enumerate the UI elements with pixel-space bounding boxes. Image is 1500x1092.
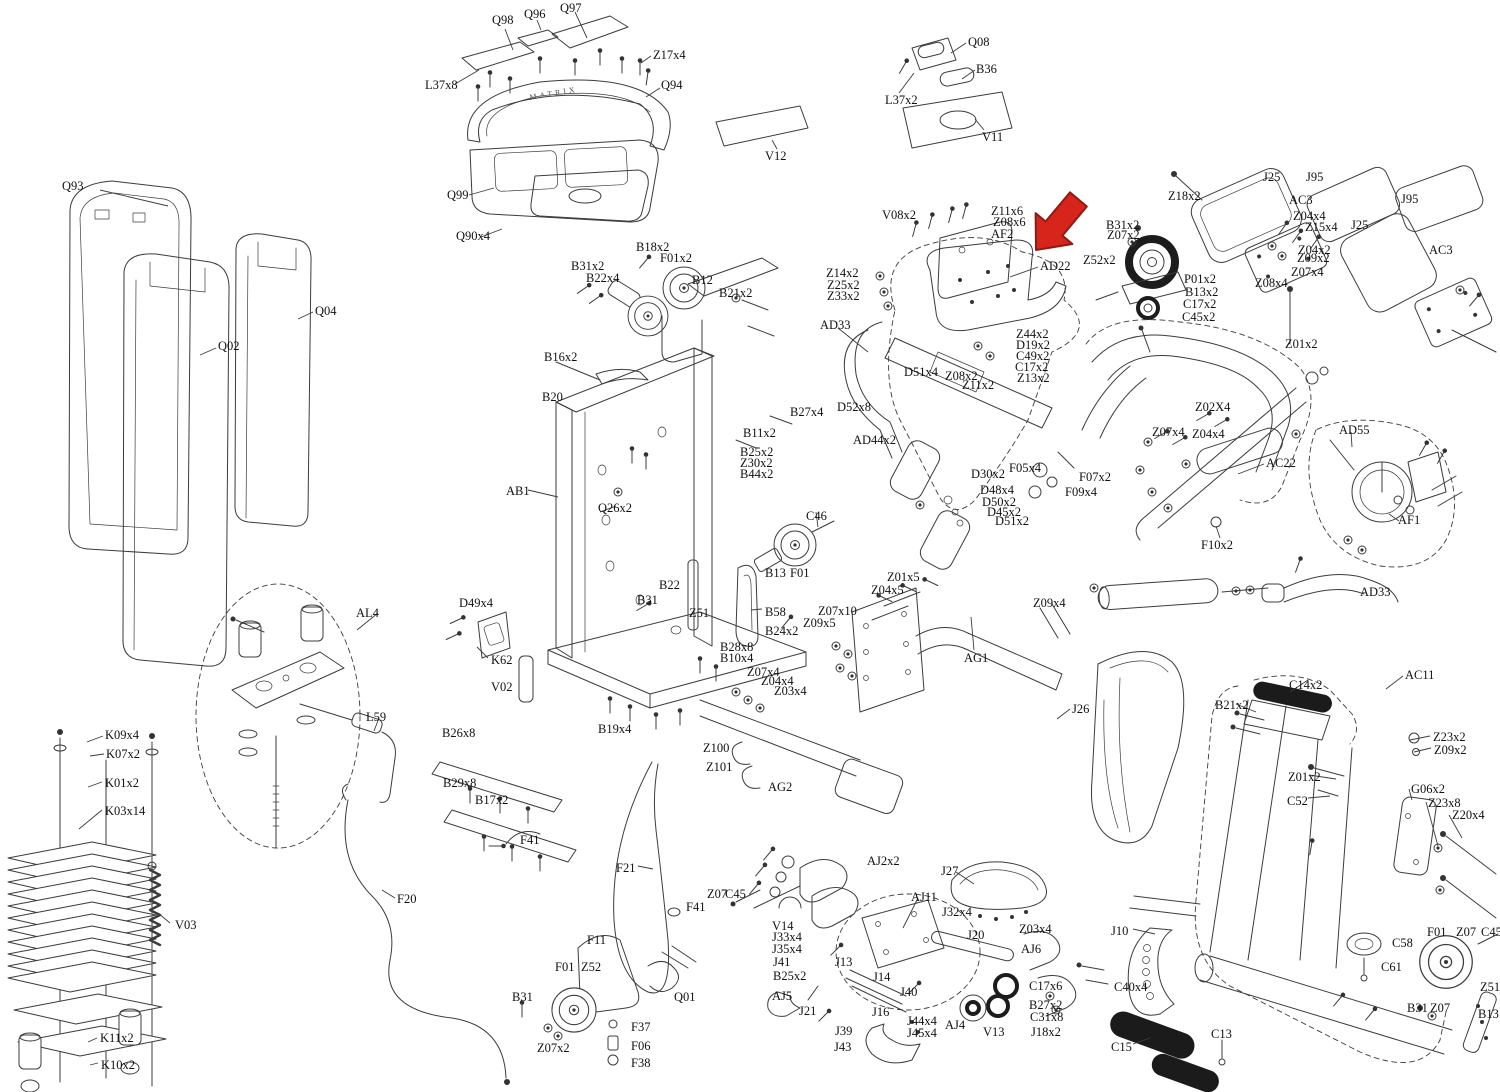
leader-line (528, 490, 558, 497)
back-pads (1171, 163, 1496, 352)
leader-line (1309, 775, 1336, 779)
seat-carriage-assembly (844, 202, 1079, 573)
leader-line (1351, 432, 1352, 447)
guide-wheel-assembly (1096, 225, 1293, 352)
leader-line (638, 866, 653, 869)
center-pulley-guide (636, 521, 834, 646)
brand-text: MATRIX (529, 85, 578, 102)
leader-line (899, 73, 914, 93)
leader-line (505, 29, 513, 50)
leader-line (1010, 267, 1038, 277)
leader-line (751, 609, 762, 610)
leader-line (469, 188, 494, 195)
seat-rail-assembly (832, 576, 1184, 843)
leader-line (956, 872, 974, 884)
roller-tube-assembly (1090, 556, 1398, 611)
leader-line (90, 1063, 98, 1065)
leader-line (816, 512, 818, 527)
left-shroud-panels (69, 181, 311, 666)
leader-line (575, 12, 587, 38)
leader-line (357, 613, 378, 630)
leader-line (88, 782, 102, 787)
leader-line (87, 736, 103, 742)
leader-line (641, 56, 651, 63)
leader-line (600, 506, 616, 512)
top-right-covers (716, 38, 1012, 148)
leader-line (90, 754, 104, 756)
main-base-frame (1077, 676, 1499, 1092)
leader-line (200, 348, 216, 355)
pedal-linkage-cluster (748, 846, 1076, 1063)
leader-line (975, 119, 984, 130)
leader-line (1057, 709, 1070, 719)
leader-line (646, 88, 660, 97)
highlight-arrow (1018, 184, 1097, 265)
press-arm-frame (1082, 320, 1328, 540)
leader-line (1386, 676, 1403, 689)
top-pulley-bracket (576, 254, 778, 362)
leader-line (772, 140, 777, 149)
weight-stack (8, 729, 166, 1092)
leader-line (1449, 815, 1462, 838)
leader-line (382, 890, 395, 898)
leader-line (951, 43, 966, 53)
pivot-plate-assembly (1309, 420, 1462, 567)
leader-line (455, 70, 479, 84)
leader-line (1238, 464, 1264, 474)
leader-lines (79, 12, 1462, 1065)
leader-line (1216, 526, 1220, 538)
diagram-artwork: MATRIX (0, 0, 1500, 1092)
leader-line (481, 229, 502, 237)
leader-line (374, 718, 379, 731)
diagram-stage: MATRIX (0, 0, 1500, 1092)
leader-line (79, 810, 102, 829)
leader-line (537, 20, 541, 30)
leader-line (1409, 789, 1412, 800)
leader-line (1308, 796, 1330, 798)
main-tower-frame (548, 348, 806, 729)
highlight-arrow-shape (1018, 184, 1097, 265)
leader-line (903, 898, 918, 928)
leader-line (158, 913, 170, 923)
leader-line (971, 617, 974, 650)
console-assembly: MATRIX (462, 16, 670, 222)
leader-line (1410, 736, 1430, 740)
bottom-pulley-assembly (520, 886, 800, 1065)
leader-line (477, 647, 488, 658)
